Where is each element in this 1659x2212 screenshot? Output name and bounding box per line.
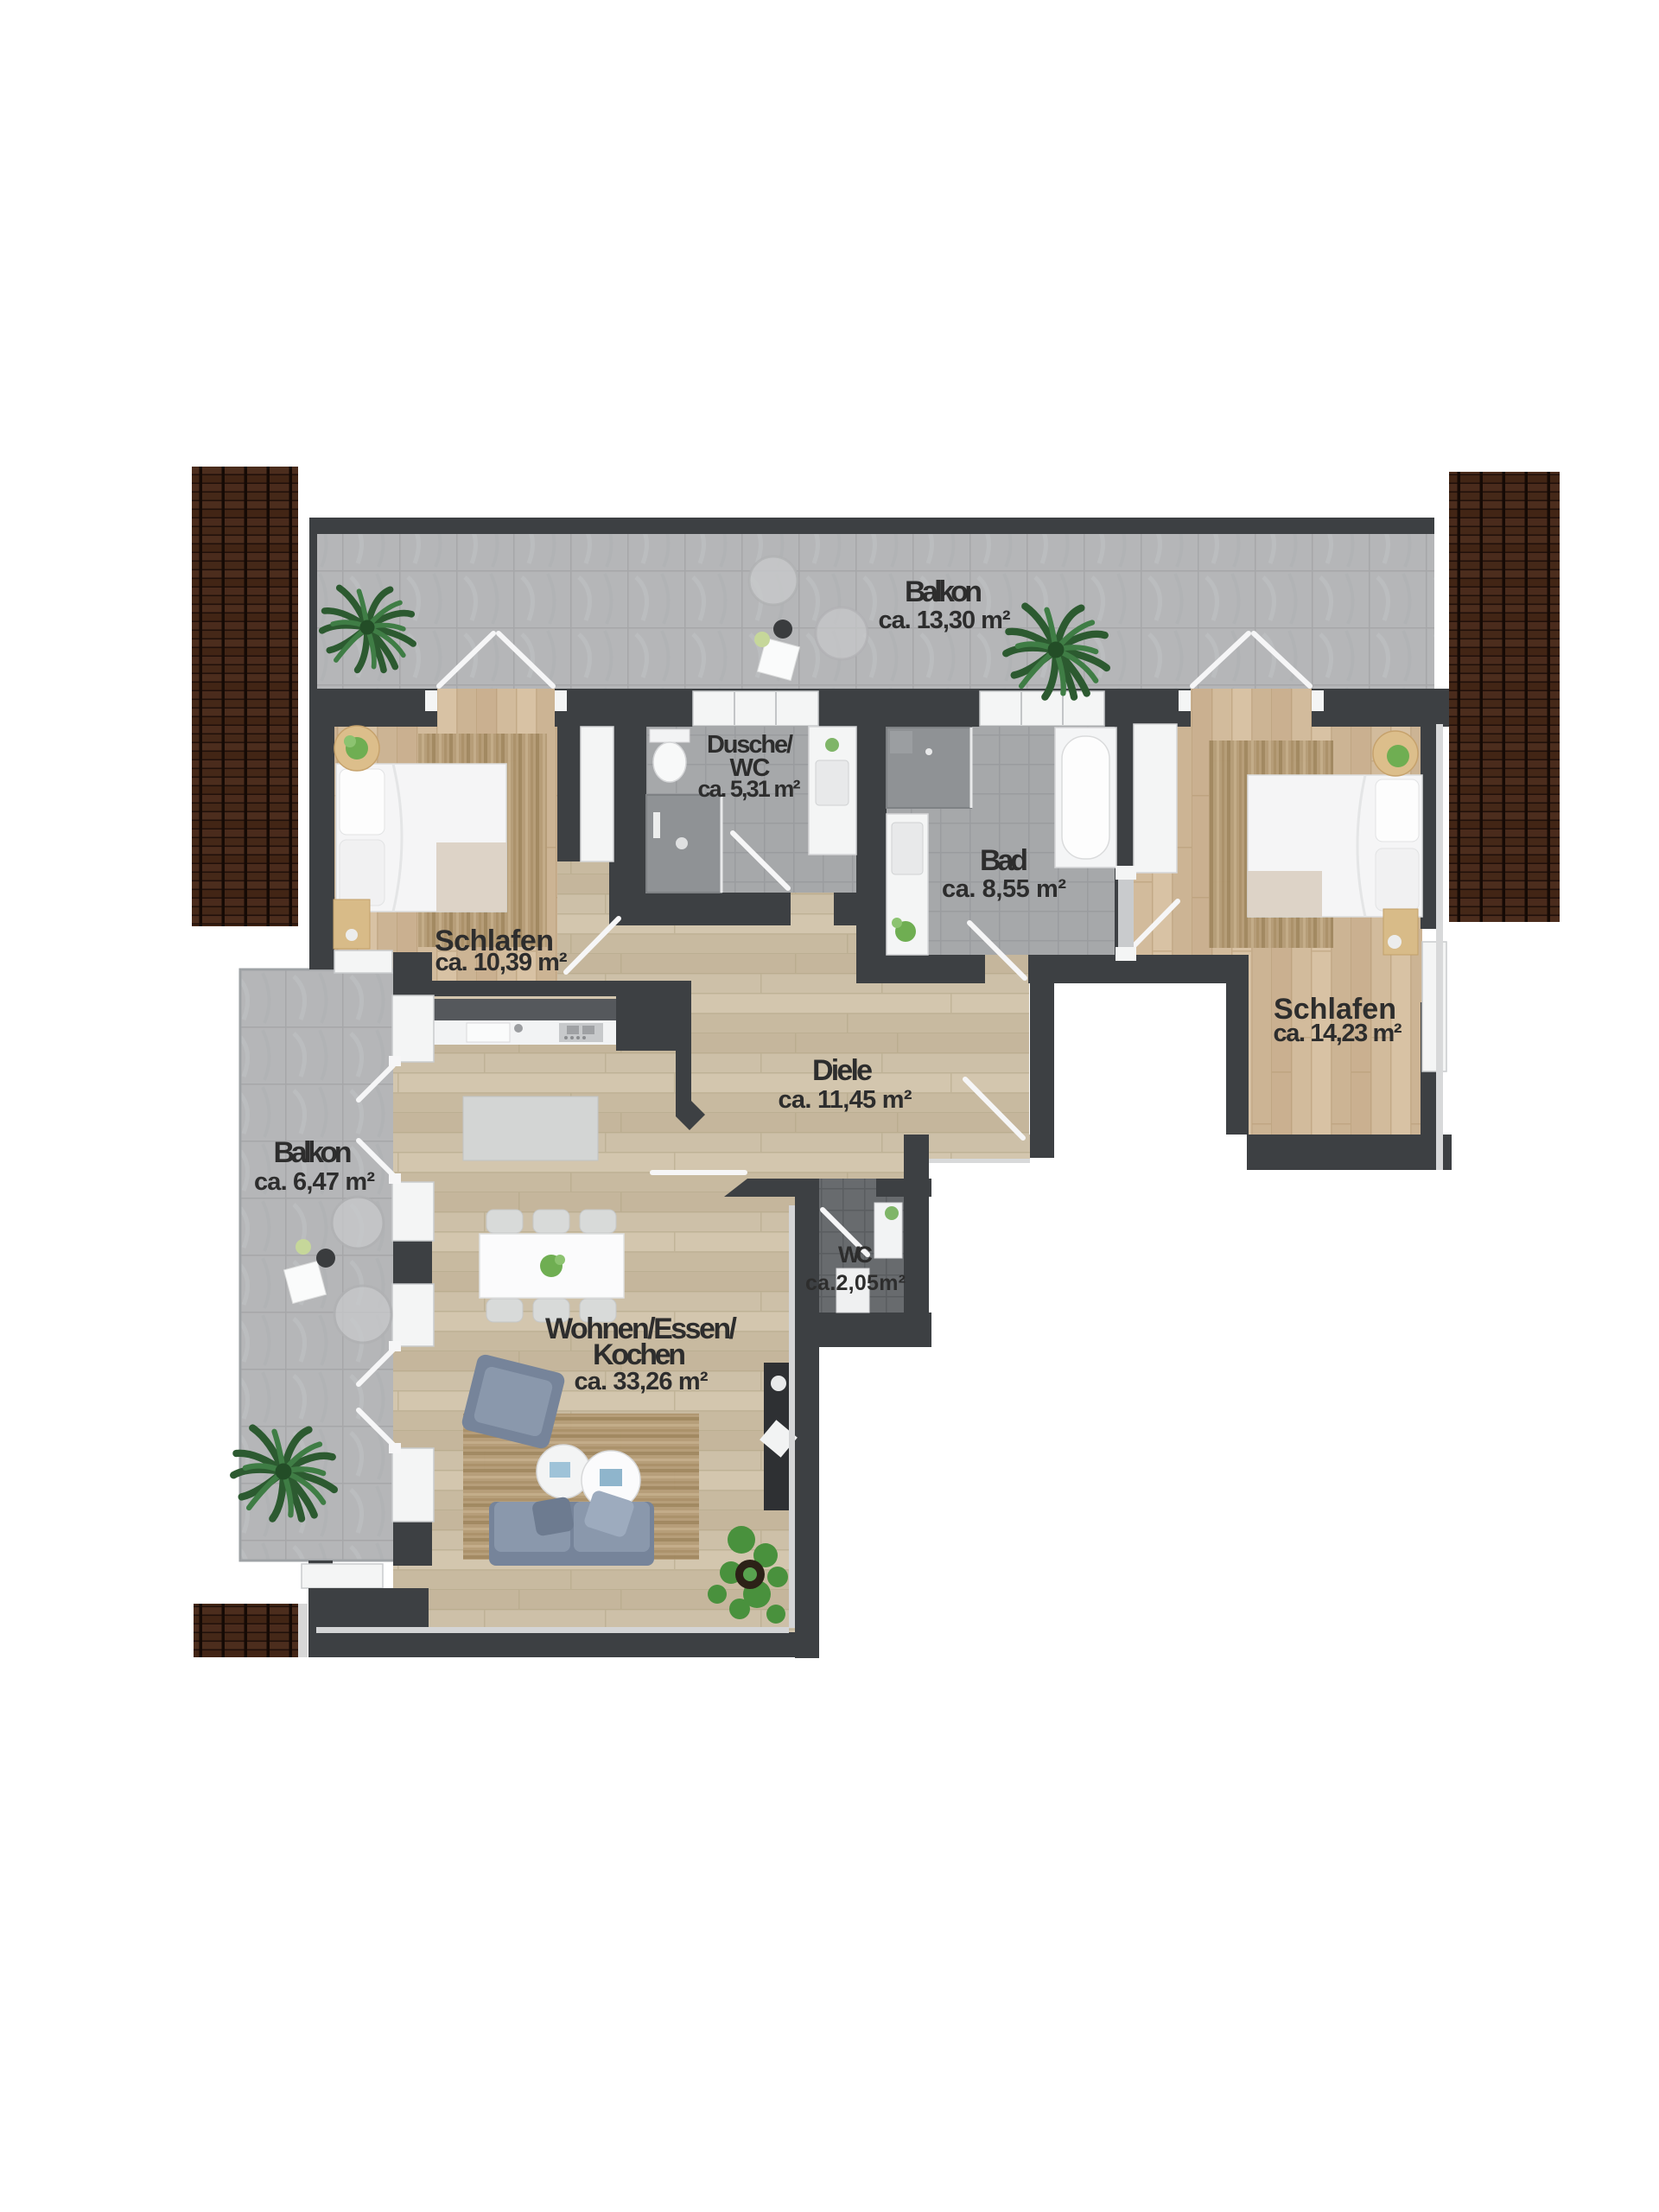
svg-text:Kochen: Kochen — [593, 1338, 686, 1371]
svg-text:ca. 33,26 m²: ca. 33,26 m² — [575, 1368, 709, 1395]
svg-text:ca. 10,39 m²: ca. 10,39 m² — [435, 949, 568, 976]
svg-text:ca. 13,30 m²: ca. 13,30 m² — [879, 607, 1011, 634]
svg-text:ca. 8,55 m²: ca. 8,55 m² — [942, 875, 1066, 903]
svg-text:ca. 6,47 m²: ca. 6,47 m² — [254, 1168, 375, 1196]
svg-text:Balkon: Balkon — [274, 1136, 353, 1169]
svg-text:Diele: Diele — [812, 1054, 873, 1087]
svg-text:Balkon: Balkon — [905, 575, 982, 608]
svg-text:ca. 5,31 m²: ca. 5,31 m² — [698, 776, 801, 802]
svg-text:ca. 14,23 m²: ca. 14,23 m² — [1274, 1020, 1402, 1047]
svg-text:WC: WC — [838, 1242, 873, 1268]
svg-text:Bad: Bad — [980, 844, 1028, 877]
svg-text:ca. 11,45 m²: ca. 11,45 m² — [779, 1086, 912, 1114]
svg-text:ca.2,05m²: ca.2,05m² — [805, 1271, 906, 1295]
